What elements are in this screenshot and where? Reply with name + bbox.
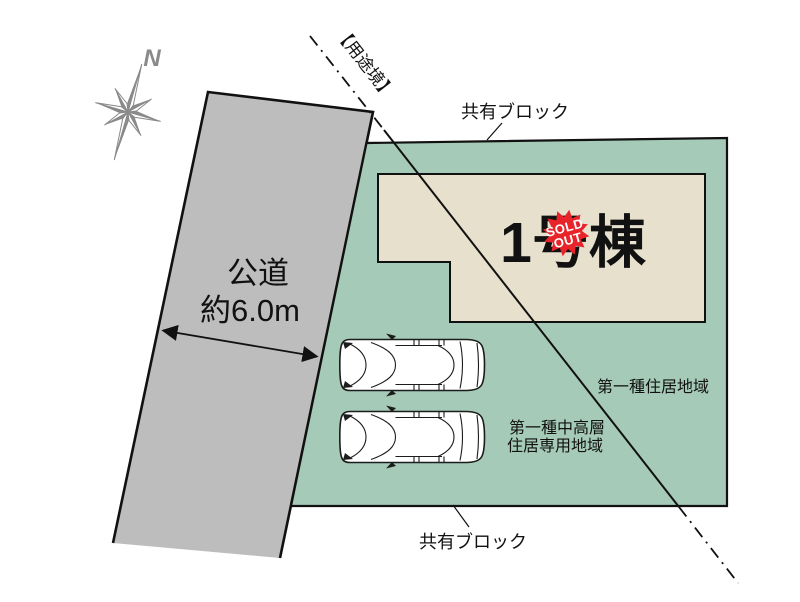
zone-label-left-line2: 住居専用地域 <box>507 437 603 455</box>
zone-label-left-line1: 第一種中高層 <box>509 419 605 437</box>
zone-label-right: 第一種住居地域 <box>597 378 709 396</box>
shared-block-leader-bottom <box>453 505 469 527</box>
shared-block-label-bottom: 共有ブロック <box>419 531 527 552</box>
car-2 <box>340 406 485 469</box>
north-label: N <box>143 45 161 72</box>
shared-block-bottom-group: 共有ブロック <box>419 505 527 552</box>
shared-block-label-top: 共有ブロック <box>461 101 569 122</box>
site-plan-drawing: 【用途境】 N 公道 約6.0m 共有ブロック 共有ブロック 第一種住居地域 第… <box>0 0 800 602</box>
shared-block-top-group: 共有ブロック <box>461 101 569 140</box>
road-label-line2: 約6.0m <box>200 293 300 328</box>
site-plan-canvas: 【用途境】 N 公道 約6.0m 共有ブロック 共有ブロック 第一種住居地域 第… <box>0 0 800 602</box>
boundary-label-group: 【用途境】 <box>331 24 398 103</box>
car-1 <box>340 334 485 397</box>
compass-rose: N <box>82 45 175 169</box>
boundary-line-bottom <box>679 507 738 583</box>
shared-block-leader-top <box>487 123 502 140</box>
boundary-label: 【用途境】 <box>331 24 398 103</box>
road-label-line1: 公道 <box>227 256 289 291</box>
